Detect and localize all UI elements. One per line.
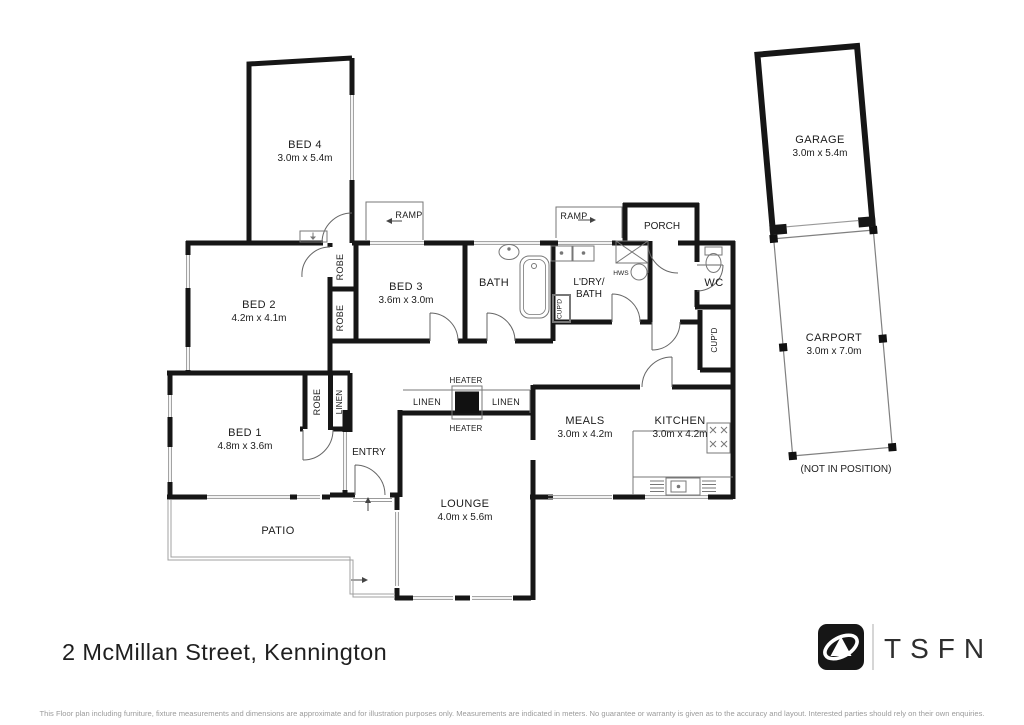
- label-bath: BATH: [479, 277, 509, 289]
- label-bed1: BED 1: [228, 427, 262, 439]
- label-kitchen: KITCHEN: [654, 415, 705, 427]
- label-laundry-1: L'DRY/: [573, 277, 604, 288]
- label-patio: PATIO: [261, 525, 294, 537]
- label-wc: WC: [704, 277, 723, 289]
- label-ramp-right: RAMP: [560, 211, 587, 221]
- bath-tub: [520, 256, 549, 318]
- label-cupd-laundry: CUP'D: [557, 299, 564, 319]
- label-linen-left: LINEN: [413, 397, 441, 407]
- label-meals: MEALS: [565, 415, 604, 427]
- label-bed1-dims: 4.8m x 3.6m: [217, 441, 272, 452]
- tsfn-logo: TSFN: [818, 624, 993, 670]
- label-bed4: BED 4: [288, 139, 322, 151]
- label-bed4-dims: 3.0m x 5.4m: [277, 153, 332, 164]
- bath-sink: [499, 245, 519, 260]
- toilet: [705, 247, 722, 273]
- label-lounge: LOUNGE: [441, 498, 490, 510]
- label-bed2: BED 2: [242, 299, 276, 311]
- label-garage: GARAGE: [795, 134, 844, 146]
- label-robe-3: ROBE: [312, 389, 322, 416]
- tsfn-logo-text: TSFN: [884, 633, 993, 664]
- label-bed3: BED 3: [389, 281, 423, 293]
- label-carport: CARPORT: [806, 332, 862, 344]
- label-heater-top: HEATER: [449, 376, 482, 385]
- label-porch: PORCH: [644, 221, 680, 232]
- label-laundry-2: BATH: [576, 289, 602, 300]
- floorplan-drawing: BED 4 3.0m x 5.4m BED 2 4.2m x 4.1m BED …: [0, 0, 1024, 725]
- label-hws: HWS: [613, 270, 629, 277]
- fixtures: [300, 202, 733, 583]
- label-meals-dims: 3.0m x 4.2m: [557, 429, 612, 440]
- label-carport-note: (NOT IN POSITION): [801, 464, 892, 475]
- address-text: 2 McMillan Street, Kennington: [62, 639, 387, 665]
- label-garage-dims: 3.0m x 5.4m: [792, 148, 847, 159]
- disclaimer-text: This Floor plan including furniture, fix…: [40, 709, 985, 718]
- label-ramp-left: RAMP: [395, 210, 422, 220]
- patio-outline: [168, 500, 395, 597]
- tsfn-logo-icon: [818, 624, 864, 670]
- label-heater-bottom: HEATER: [449, 424, 482, 433]
- label-entry: ENTRY: [352, 447, 386, 458]
- label-bed2-dims: 4.2m x 4.1m: [231, 313, 286, 324]
- label-linen-right: LINEN: [492, 397, 520, 407]
- label-kitchen-dims: 3.0m x 4.2m: [652, 429, 707, 440]
- label-cupd-hall: CUP'D: [710, 327, 719, 352]
- hws-unit: [631, 264, 647, 280]
- label-robe-2: ROBE: [335, 305, 345, 332]
- label-robe-1: ROBE: [335, 254, 345, 281]
- floorplan-page: BED 4 3.0m x 5.4m BED 2 4.2m x 4.1m BED …: [0, 0, 1024, 725]
- label-carport-dims: 3.0m x 7.0m: [806, 346, 861, 357]
- label-lounge-dims: 4.0m x 5.6m: [437, 512, 492, 523]
- label-linen-vertical: LINEN: [335, 390, 344, 415]
- label-bed3-dims: 3.6m x 3.0m: [378, 295, 433, 306]
